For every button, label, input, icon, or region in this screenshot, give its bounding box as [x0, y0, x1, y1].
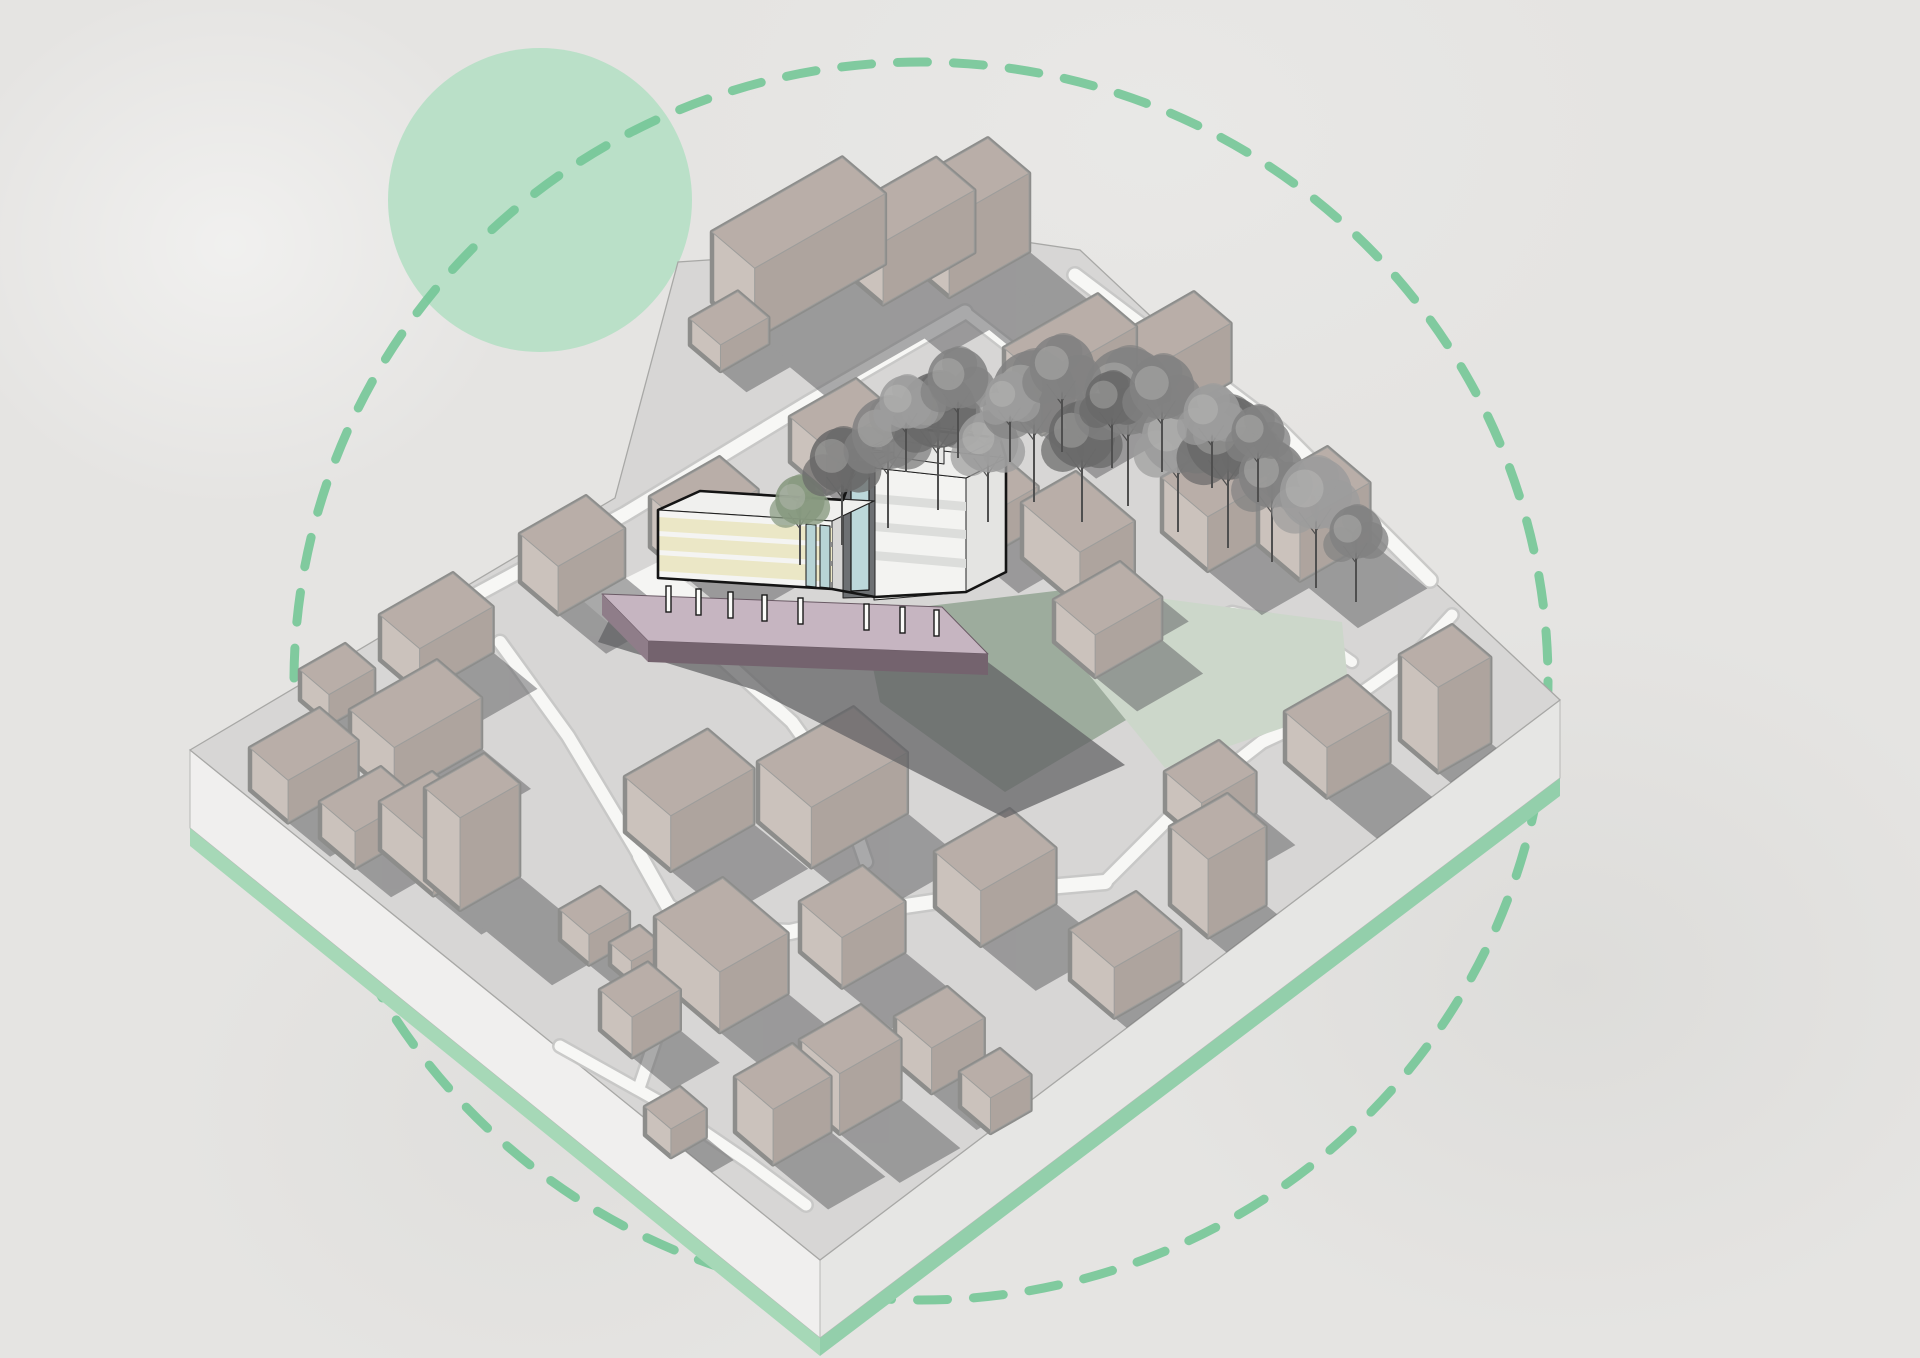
green-solid-circle	[388, 48, 692, 352]
site-diagram-canvas	[0, 0, 1920, 1358]
site-axonometric-svg	[0, 0, 1920, 1358]
